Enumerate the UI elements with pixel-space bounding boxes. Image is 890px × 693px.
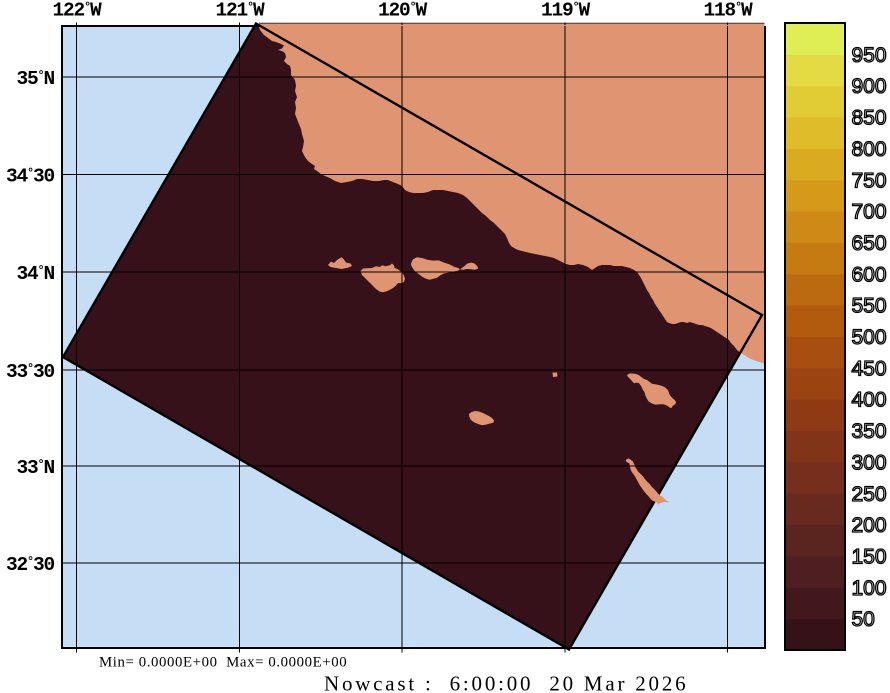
svg-text:800: 800	[852, 138, 887, 161]
svg-text:600: 600	[852, 263, 887, 286]
svg-text:34°30: 34°30	[6, 166, 55, 188]
svg-text:33°N: 33°N	[16, 457, 54, 479]
svg-text:50: 50	[852, 608, 875, 631]
svg-text:119°W: 119°W	[541, 0, 591, 22]
svg-text:450: 450	[852, 357, 887, 380]
svg-text:400: 400	[852, 389, 887, 412]
svg-text:500: 500	[852, 326, 887, 349]
svg-text:850: 850	[852, 107, 887, 130]
svg-text:33°30: 33°30	[6, 361, 55, 383]
svg-text:250: 250	[852, 483, 887, 506]
svg-text:118°W: 118°W	[703, 0, 753, 22]
svg-text:150: 150	[852, 545, 887, 568]
svg-text:121°W: 121°W	[215, 0, 265, 22]
svg-text:350: 350	[852, 420, 887, 443]
svg-text:650: 650	[852, 232, 887, 255]
svg-text:Nowcast : 6:00:00 20 Mar 202: Nowcast : 6:00:00 20 Mar 2026	[324, 672, 688, 693]
svg-text:550: 550	[852, 295, 887, 318]
svg-text:700: 700	[852, 201, 887, 224]
svg-text:900: 900	[852, 75, 887, 98]
svg-text:950: 950	[852, 44, 887, 67]
svg-text:300: 300	[852, 451, 887, 474]
svg-text:200: 200	[852, 514, 887, 537]
svg-text:32°30: 32°30	[6, 554, 55, 576]
svg-text:750: 750	[852, 169, 887, 192]
svg-text:100: 100	[852, 577, 887, 600]
svg-text:120°W: 120°W	[378, 0, 428, 22]
svg-text:34°N: 34°N	[16, 263, 54, 285]
svg-text:35°N: 35°N	[16, 68, 54, 90]
svg-text:Min= 0.0000E+00 Max= 0.0000E+: Min= 0.0000E+00 Max= 0.0000E+00	[99, 655, 347, 671]
svg-text:122°W: 122°W	[52, 0, 102, 22]
